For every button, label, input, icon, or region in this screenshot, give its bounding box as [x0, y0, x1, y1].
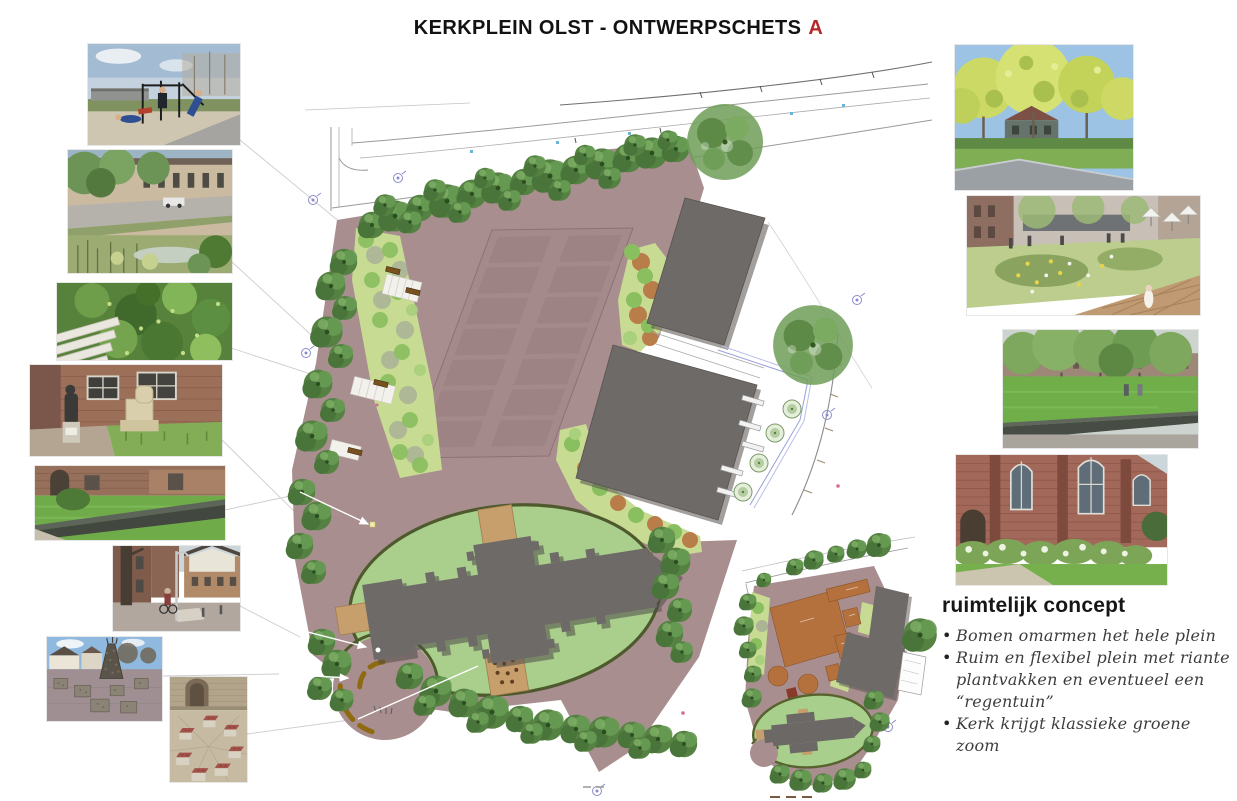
concept-bullet-3: • Kerk krijgt klassieke groene zoom [942, 713, 1235, 757]
marker-dot-white [376, 648, 381, 653]
marker-dot-yellow [370, 522, 375, 527]
concept-bullet-list: • Bomen omarmen het hele plein • Ruim en… [942, 625, 1235, 757]
bullet-marker: • [942, 647, 956, 713]
concept-text-block: ruimtelijk concept • Bomen omarmen het h… [942, 594, 1235, 757]
street-lamppost-photo [113, 546, 240, 631]
inset-concept-plan [734, 533, 937, 797]
plants-in-paving-photo [57, 283, 232, 360]
church-hedge-photo [956, 455, 1167, 585]
regentuin-render-photo [967, 196, 1200, 315]
brick-seat-circle-photo [170, 677, 247, 782]
street-trees-photo [955, 45, 1133, 190]
street-raingarden-photo [68, 150, 232, 273]
concept-bullet-2: • Ruim en flexibel plein met riante plan… [942, 647, 1235, 713]
concept-heading: ruimtelijk concept [942, 594, 1235, 618]
presentation-slide: KERKPLEIN OLST - ONTWERPSCHETSA [0, 0, 1237, 801]
church-lawn-edge-photo [35, 466, 225, 540]
bullet-marker: • [942, 713, 956, 757]
concept-bullet-text: Bomen omarmen het hele plein [956, 625, 1216, 647]
concept-bullet-1: • Bomen omarmen het hele plein [942, 625, 1235, 647]
village-square-tower-photo [47, 637, 162, 721]
fitness-equipment-photo [88, 44, 240, 145]
statues-photo [30, 365, 222, 456]
concept-bullet-text: Kerk krijgt klassieke groene zoom [956, 713, 1235, 757]
concept-bullet-text: Ruim en flexibel plein met riante plantv… [956, 647, 1235, 713]
bullet-marker: • [942, 625, 956, 647]
green-square-trees-photo [1003, 330, 1198, 448]
